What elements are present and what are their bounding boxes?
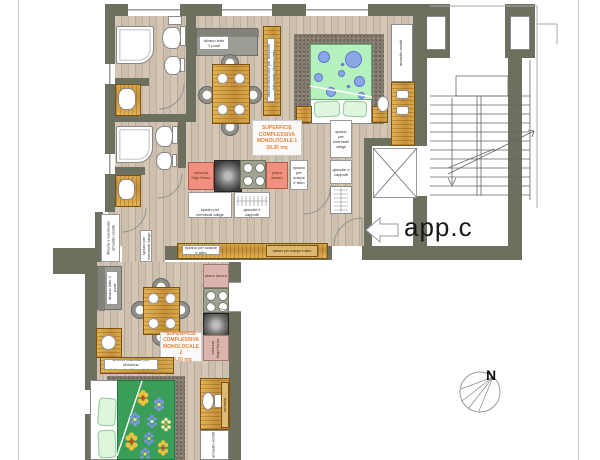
compass: N <box>460 367 500 412</box>
hanger-strokes <box>236 188 348 212</box>
duvet-diamonds <box>340 62 350 88</box>
apartment-label: app.c <box>404 212 473 243</box>
staircase <box>430 60 534 200</box>
linework-overlay: N <box>0 0 600 460</box>
elevator-x <box>373 148 417 198</box>
floor-plan: divano letto 2 posti libreria bifacciale… <box>0 0 600 460</box>
apartment-arrow-icon <box>366 218 398 242</box>
building-outline <box>430 6 557 208</box>
compass-north-label: N <box>486 367 496 383</box>
bed2-flowers <box>125 390 170 459</box>
